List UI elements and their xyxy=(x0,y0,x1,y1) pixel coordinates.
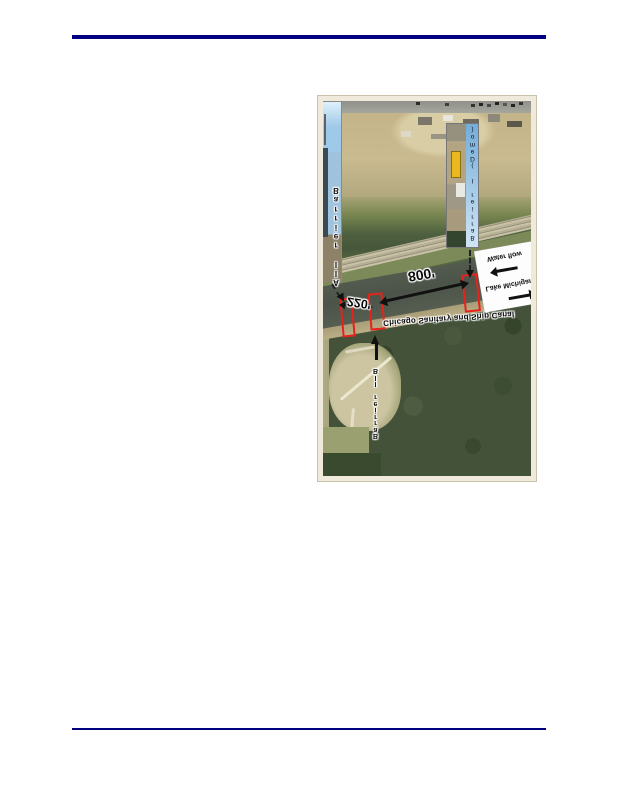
utility-pole xyxy=(324,114,326,145)
white-structure xyxy=(456,183,465,197)
dashed-leader-barrier-i-head xyxy=(466,270,474,278)
barrier-i-demo-label: Barrier I (Demo) xyxy=(466,126,479,241)
yellow-equipment xyxy=(451,151,461,178)
tree-line xyxy=(323,453,381,476)
right-arrow-icon xyxy=(509,293,531,300)
barrier-iib-label: Barrier IIB xyxy=(369,367,382,439)
barrier-iib-arrow-head xyxy=(371,335,379,344)
road-band xyxy=(323,101,531,113)
top-horizontal-rule xyxy=(72,35,546,39)
barrier-iia-photo-inset: AII reirraB xyxy=(323,101,342,282)
water-flow-legend: Lake Michigan Water flow xyxy=(474,241,531,312)
water-edge xyxy=(323,148,328,238)
barrier-iib-arrow-line xyxy=(375,343,378,360)
building xyxy=(443,115,453,121)
building xyxy=(401,131,411,137)
dashed-leader-barrier-i xyxy=(469,250,471,271)
document-page: AII reirraB Barrier I (Demo) 800' 220' C… xyxy=(0,0,618,800)
aerial-figure: AII reirraB Barrier I (Demo) 800' 220' C… xyxy=(317,95,537,482)
barrier-iia-label: AII reirraB xyxy=(330,186,342,287)
parked-cars xyxy=(471,104,475,107)
aerial-photo-mirrored: AII reirraB Barrier I (Demo) 800' 220' C… xyxy=(323,101,531,476)
water-flow-label: Water flow xyxy=(486,249,522,262)
building xyxy=(488,114,500,122)
building xyxy=(418,117,432,125)
bottom-horizontal-rule xyxy=(72,728,546,730)
building xyxy=(507,121,522,127)
barrier-i-demo-photo-inset: Barrier I (Demo) xyxy=(446,123,479,248)
left-arrow-icon xyxy=(496,267,518,274)
industrial-sand-area xyxy=(323,113,531,197)
